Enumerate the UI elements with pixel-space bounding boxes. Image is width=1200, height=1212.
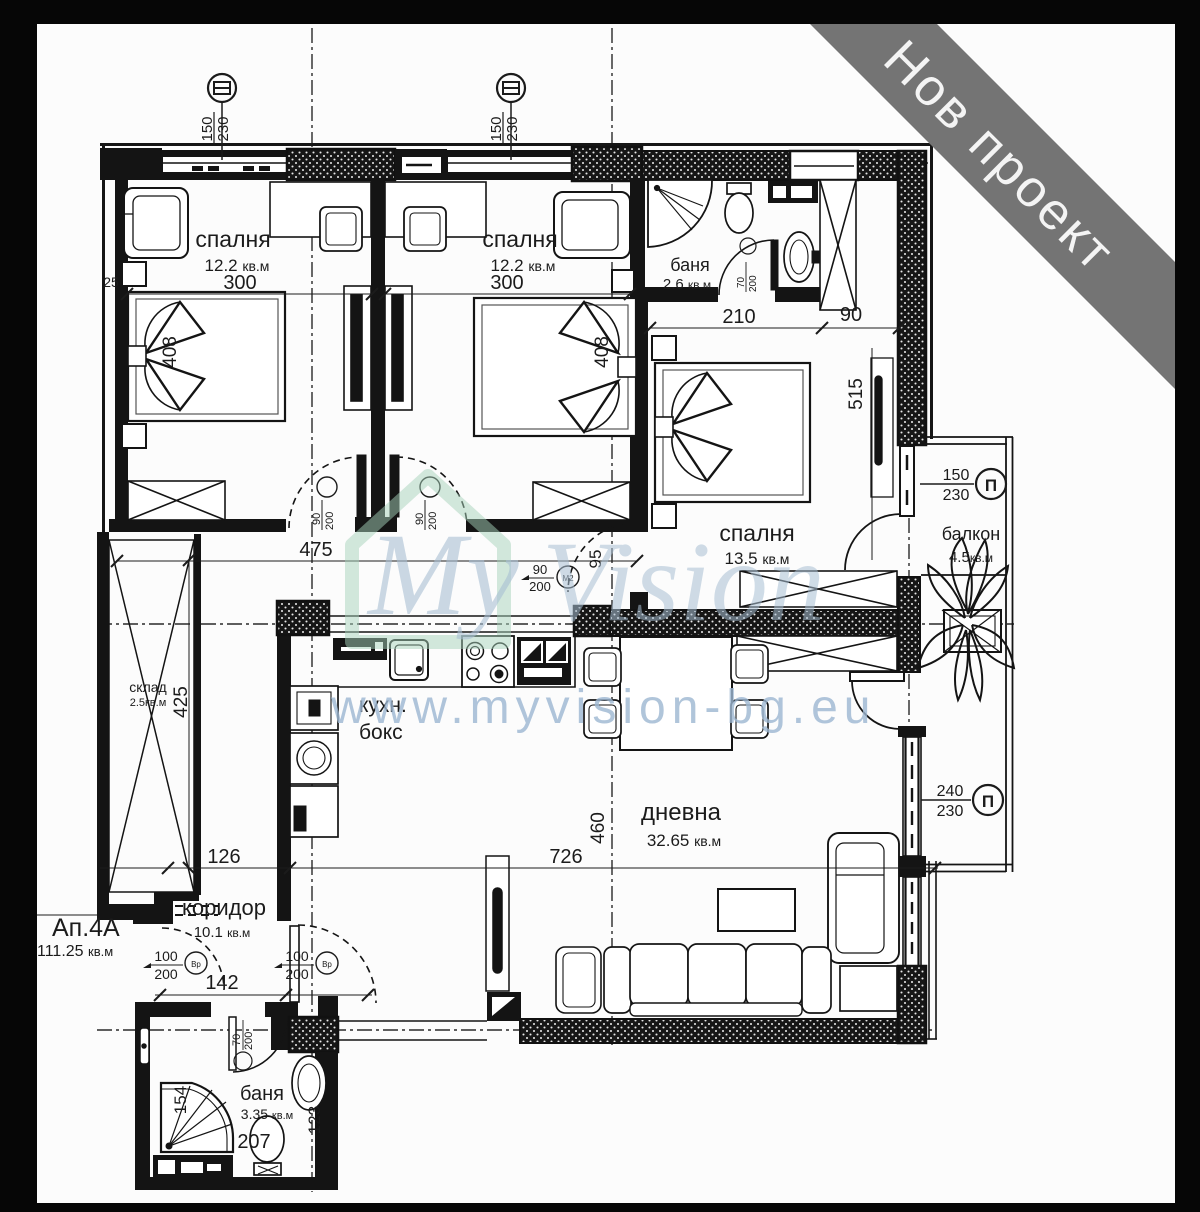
svg-text:Ап.4А: Ап.4А — [52, 914, 120, 942]
svg-text:515: 515 — [846, 378, 867, 410]
svg-text:425: 425 — [171, 686, 192, 718]
svg-text:П: П — [982, 792, 994, 811]
svg-text:408: 408 — [160, 336, 181, 368]
svg-text:200: 200 — [324, 512, 336, 530]
svg-text:Вр: Вр — [322, 960, 332, 969]
svg-text:230: 230 — [504, 116, 521, 141]
svg-text:142: 142 — [205, 972, 238, 994]
svg-text:Vision: Vision — [542, 518, 825, 645]
svg-text:210: 210 — [722, 306, 755, 328]
svg-text:230: 230 — [937, 803, 964, 820]
svg-text:2.5кв.м: 2.5кв.м — [130, 697, 167, 709]
svg-text:207: 207 — [237, 1131, 270, 1153]
svg-text:240: 240 — [937, 783, 964, 800]
svg-text:726: 726 — [549, 846, 582, 868]
svg-text:спалня: спалня — [195, 226, 270, 252]
svg-text:склад: склад — [129, 679, 166, 695]
svg-text:баня: баня — [240, 1083, 284, 1105]
svg-text:230: 230 — [215, 116, 232, 141]
svg-text:111.25 кв.м: 111.25 кв.м — [37, 943, 113, 960]
svg-text:475: 475 — [299, 539, 332, 561]
svg-text:спалня: спалня — [482, 226, 557, 252]
svg-text:4.5кв.м: 4.5кв.м — [949, 549, 993, 566]
svg-text:коридор: коридор — [182, 895, 266, 920]
svg-text:П: П — [985, 476, 997, 495]
svg-text:200: 200 — [154, 966, 178, 982]
svg-text:32.65 кв.м: 32.65 кв.м — [647, 831, 721, 850]
svg-text:460: 460 — [588, 812, 609, 844]
svg-text:25: 25 — [103, 274, 119, 290]
svg-text:My: My — [366, 509, 519, 640]
svg-text:балкон: балкон — [942, 524, 1000, 544]
svg-text:2.6 кв.м: 2.6 кв.м — [663, 276, 711, 293]
svg-text:408: 408 — [592, 336, 613, 368]
svg-text:100: 100 — [285, 948, 309, 964]
svg-text:90: 90 — [311, 513, 323, 525]
svg-text:100: 100 — [154, 948, 178, 964]
svg-text:150: 150 — [943, 467, 970, 484]
svg-text:200: 200 — [285, 966, 309, 982]
svg-text:123: 123 — [305, 1106, 324, 1134]
svg-text:70: 70 — [736, 276, 747, 288]
svg-text:300: 300 — [490, 272, 523, 294]
svg-text:230: 230 — [943, 487, 970, 504]
svg-text:200: 200 — [243, 1032, 255, 1050]
svg-text:Вр: Вр — [191, 960, 201, 969]
svg-text:126: 126 — [207, 846, 240, 868]
svg-text:баня: баня — [670, 255, 710, 275]
svg-text:10.1 кв.м: 10.1 кв.м — [194, 924, 251, 941]
svg-text:70: 70 — [231, 1034, 243, 1046]
svg-text:300: 300 — [223, 272, 256, 294]
svg-text:154: 154 — [171, 1086, 190, 1114]
svg-text:90: 90 — [840, 304, 862, 326]
svg-text:дневна: дневна — [641, 799, 722, 826]
svg-text:200: 200 — [748, 275, 759, 292]
svg-text:www.myvision-bg.eu: www.myvision-bg.eu — [330, 681, 876, 734]
